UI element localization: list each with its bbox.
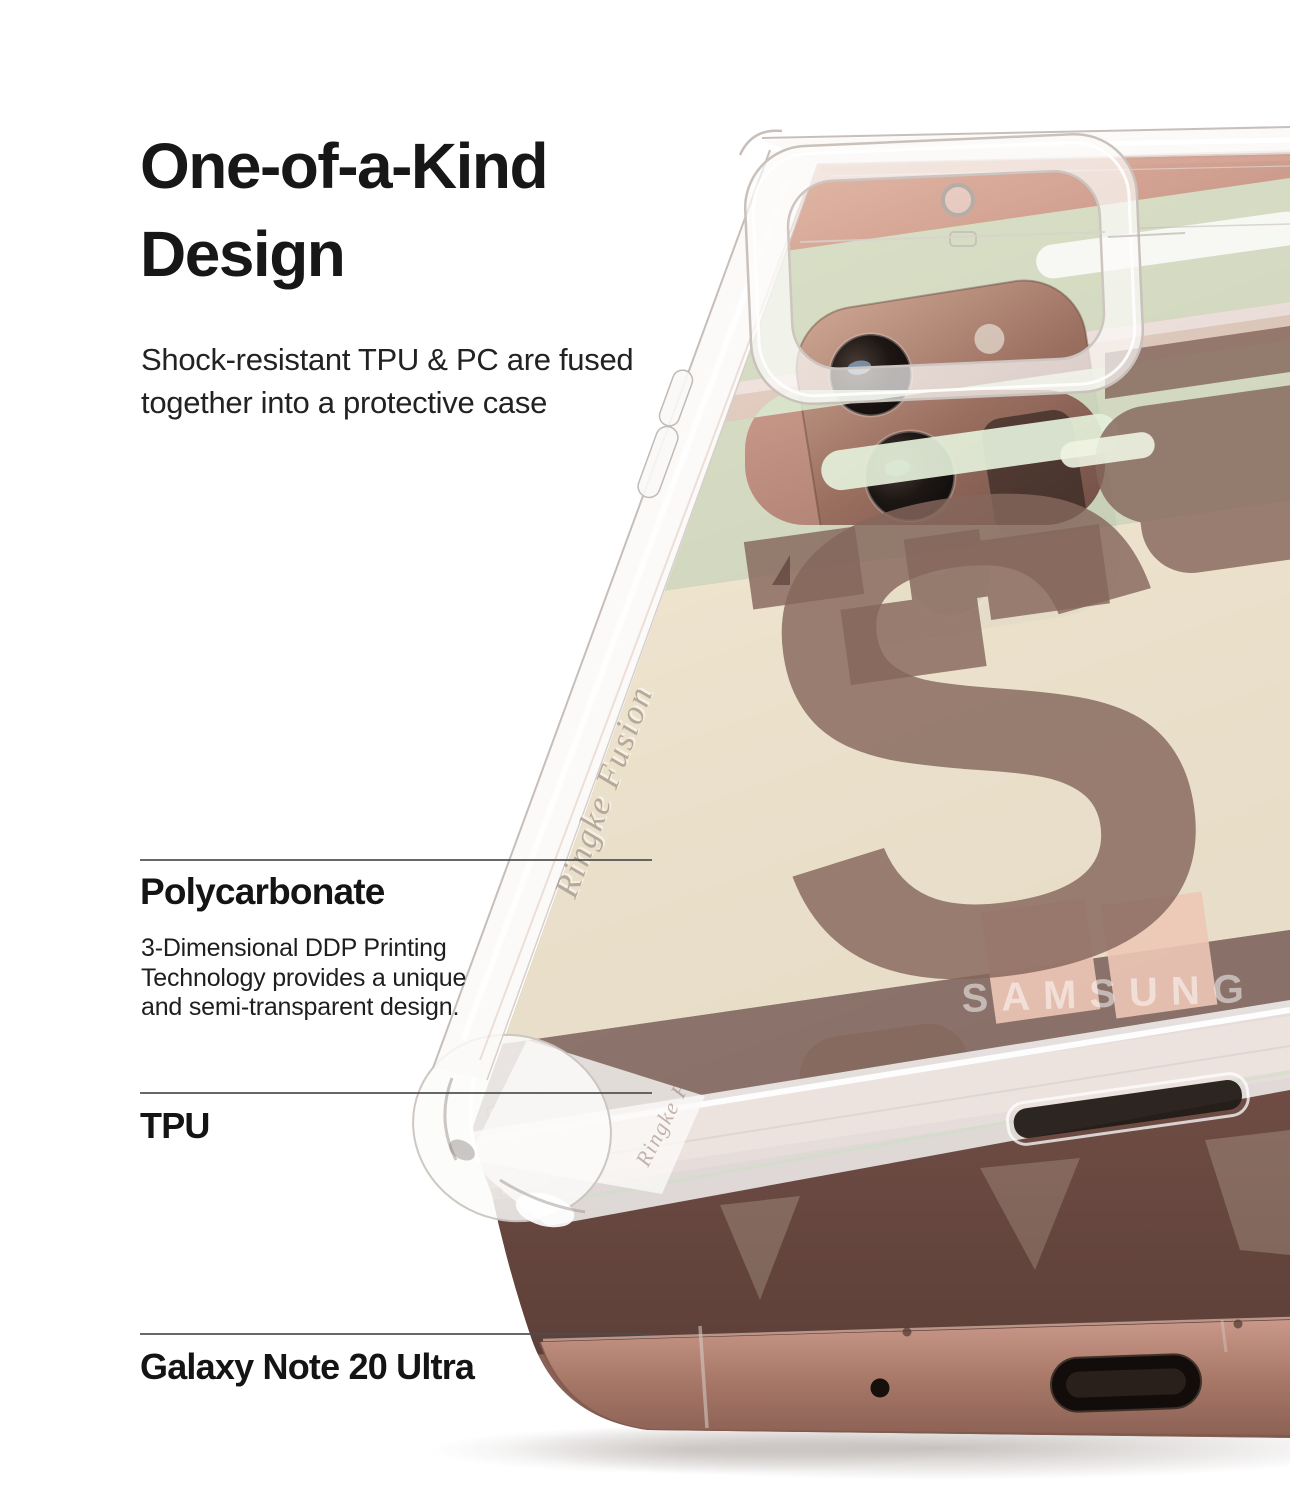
mic-hole — [871, 1379, 890, 1398]
usb-c-port — [1050, 1353, 1202, 1412]
callout-line-tpu — [140, 1092, 652, 1094]
callout-line-polycarbonate — [140, 859, 652, 861]
callout-description-line2: Technology provides a unique — [141, 964, 466, 994]
page-subtitle: Shock-resistant TPU & PC are fused toget… — [141, 338, 633, 424]
callout-description-line1: 3-Dimensional DDP Printing — [141, 934, 466, 964]
callout-description-line3: and semi-transparent design. — [141, 993, 466, 1023]
callout-label-polycarbonate: Polycarbonate — [140, 871, 385, 913]
page-title-line1: One-of-a-Kind — [140, 122, 547, 210]
screw — [903, 1328, 912, 1337]
callout-line-galaxy — [140, 1333, 652, 1335]
callout-description-polycarbonate: 3-Dimensional DDP Printing Technology pr… — [141, 934, 466, 1023]
page-title-line2: Design — [140, 210, 547, 298]
page-title: One-of-a-Kind Design — [140, 122, 547, 298]
callout-label-galaxy: Galaxy Note 20 Ultra — [140, 1346, 474, 1388]
screw — [1234, 1320, 1243, 1329]
marketing-page: S SAMSUNG — [0, 0, 1290, 1500]
callout-label-tpu: TPU — [140, 1105, 210, 1147]
page-subtitle-line1: Shock-resistant TPU & PC are fused — [141, 338, 633, 381]
flash-lens — [943, 185, 973, 215]
page-subtitle-line2: together into a protective case — [141, 381, 633, 424]
